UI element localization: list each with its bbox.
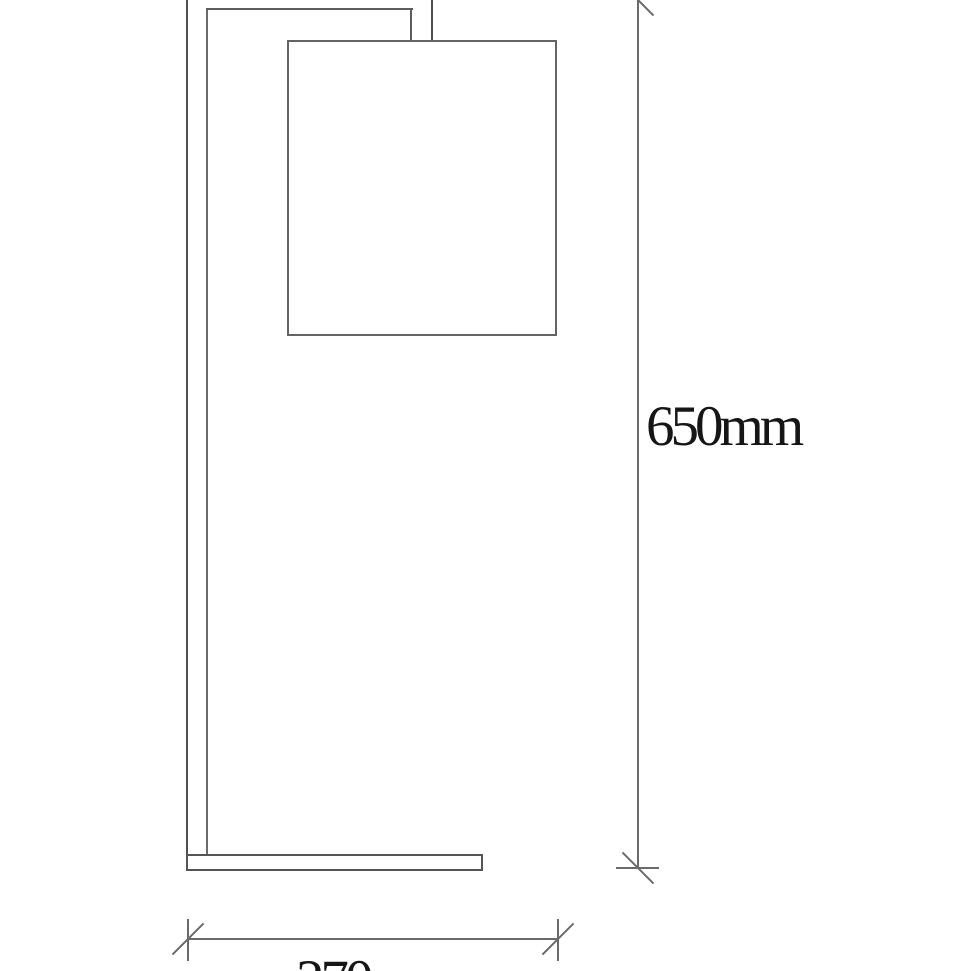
lampshade-rect — [287, 40, 557, 336]
lamp-arm-inner-top-line — [206, 8, 413, 10]
lamp-arm-outer-drop-line — [431, 0, 433, 43]
lamp-dimension-drawing: 650mm 270mm — [0, 0, 970, 971]
lamp-pole-inner-line — [206, 8, 208, 856]
lamp-base-rect — [186, 854, 483, 871]
height-dimension-label: 650mm — [646, 398, 800, 455]
depth-dimension-line — [188, 938, 558, 940]
lamp-pole-outer-line — [186, 0, 188, 856]
depth-dimension-label: 270mm — [296, 952, 450, 971]
height-dimension-line — [637, 0, 639, 868]
lamp-arm-inner-drop-line — [410, 8, 412, 43]
